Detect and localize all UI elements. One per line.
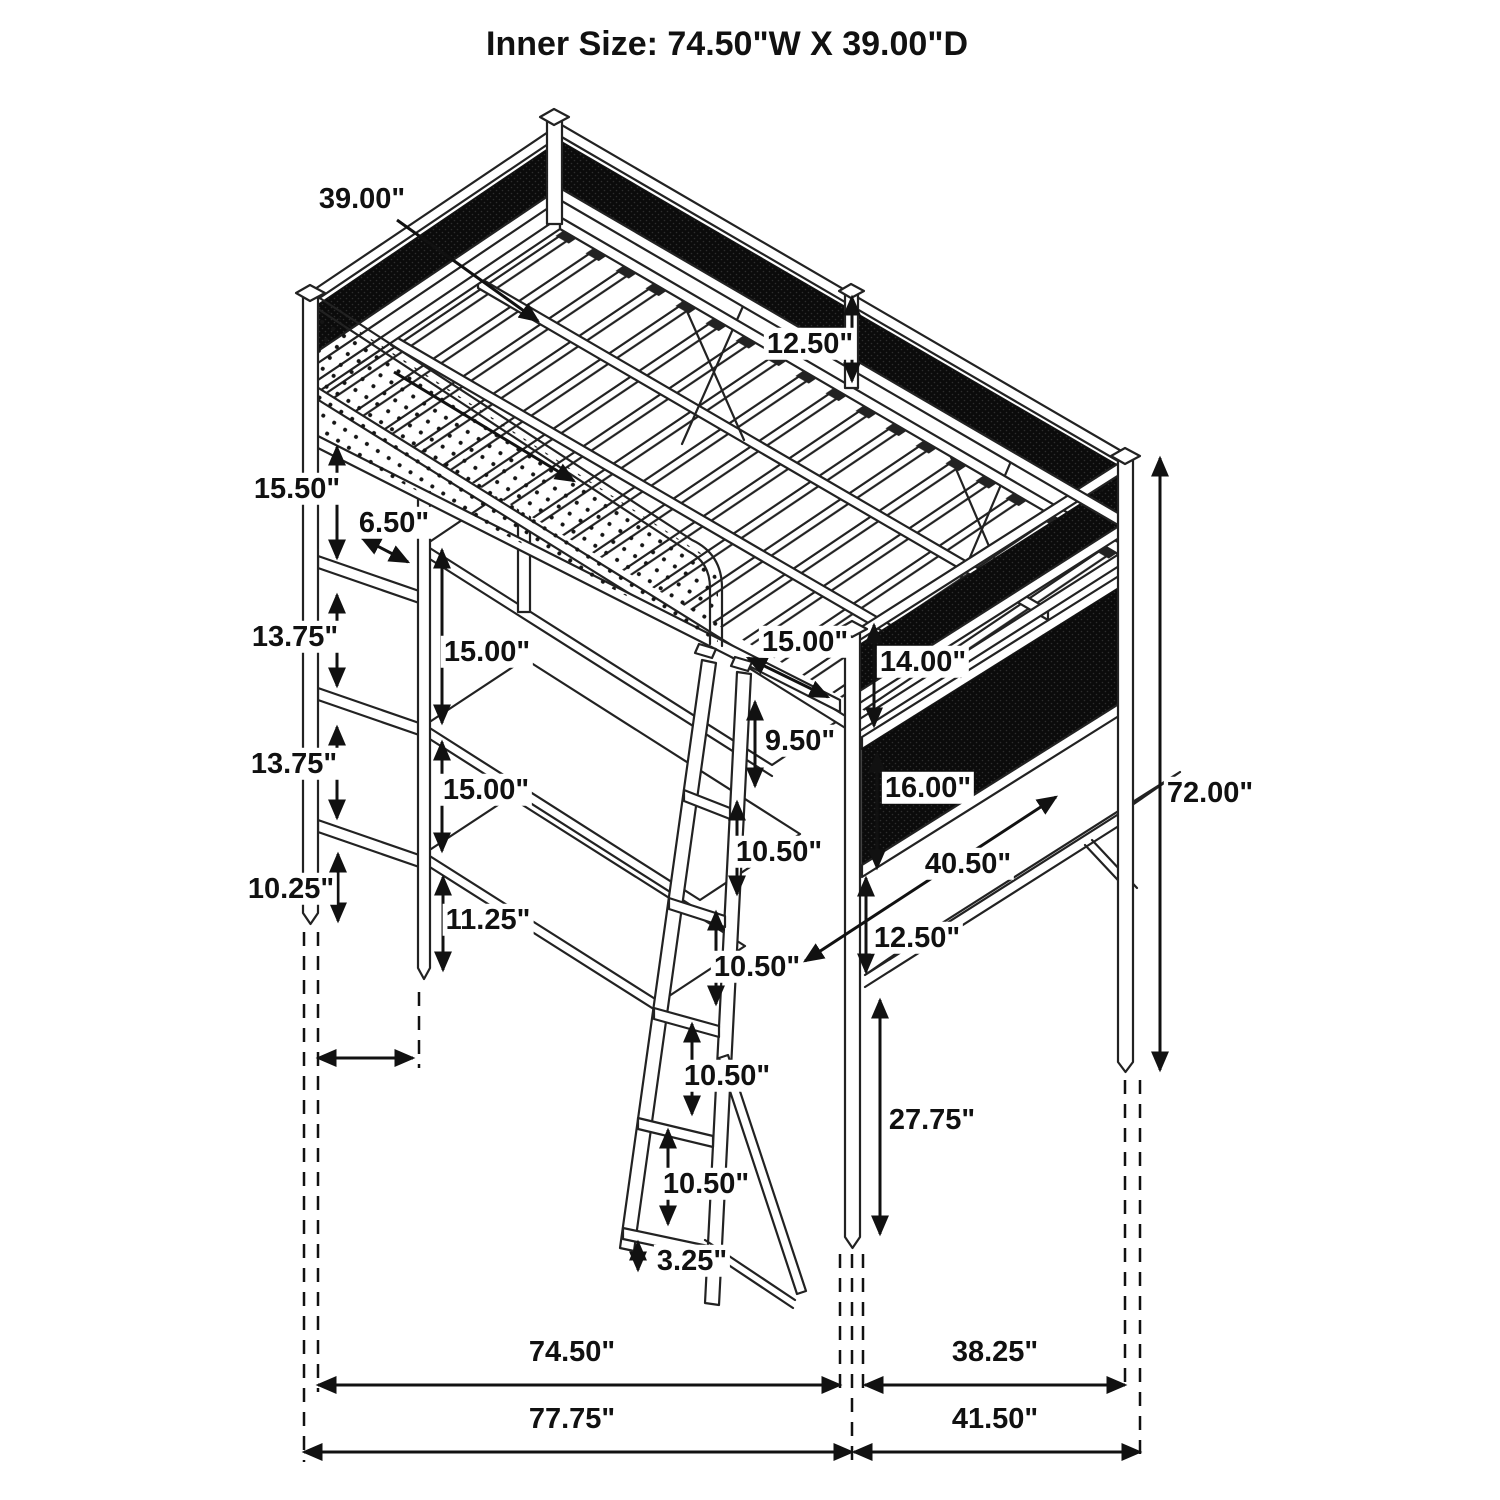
dim-guard-height: 12.50" [764,328,856,360]
dim-total-height: 72.00" [1164,777,1256,809]
side-shelf-1 [318,556,425,605]
dim-right-inner-width: 38.25" [949,1336,1041,1368]
side-shelf-3 [318,820,425,869]
dim-shelf-depth: 6.50" [356,507,432,539]
dim-right-outer-width: 41.50" [949,1403,1041,1435]
diagram-title: Inner Size: 74.50"W X 39.00"D [486,25,968,64]
dim-rung-gap-3: 10.50" [681,1060,773,1092]
dim-right-desk-width: 40.50" [922,848,1014,880]
dim-rail-to-panel: 14.00" [877,646,969,678]
dim-rung-gap-2: 10.50" [711,951,803,983]
dim-shelf3-to-floor: 10.25" [245,873,337,905]
side-shelf-2 [318,688,425,737]
dim-ladder-top-gap: 9.50" [762,725,838,757]
dim-shelf2-to-shelf3: 13.75" [248,748,340,780]
dim-panel-to-desk: 12.50" [871,922,963,954]
dim-desk-gap-lower: 15.00" [440,774,532,806]
dim-desk-gap-upper: 15.00" [441,636,533,668]
dim-shelf1-to-shelf2: 13.75" [249,621,341,653]
dim-rung-gap-4: 10.50" [660,1168,752,1200]
dim-desk-to-floor: 27.75" [886,1104,978,1136]
back-corner-post [547,121,562,224]
dim-rung-gap-1: 10.50" [733,836,825,868]
dim-ladder-foot: 3.25" [654,1245,730,1277]
loft-bed-dimension-diagram: Inner Size: 74.50"W X 39.00"D 39.00" 12.… [0,0,1500,1500]
dim-shelf-to-floor: 11.25" [443,904,534,936]
dim-inner-depth: 39.00" [316,183,408,215]
back-left-post [303,297,318,924]
dim-rail-to-shelf1: 15.50" [251,473,343,505]
dim-inner-width: 74.50" [526,1336,618,1368]
diagram-canvas [0,0,1500,1500]
desk-post [418,492,430,979]
ladder-right-rail [705,672,751,1305]
dim-ladder-opening: 15.00" [759,626,851,658]
dim-panel-height: 16.00" [882,772,974,804]
dim-outer-width: 77.75" [526,1403,618,1435]
front-post [845,633,860,1248]
right-post [1118,460,1133,1072]
